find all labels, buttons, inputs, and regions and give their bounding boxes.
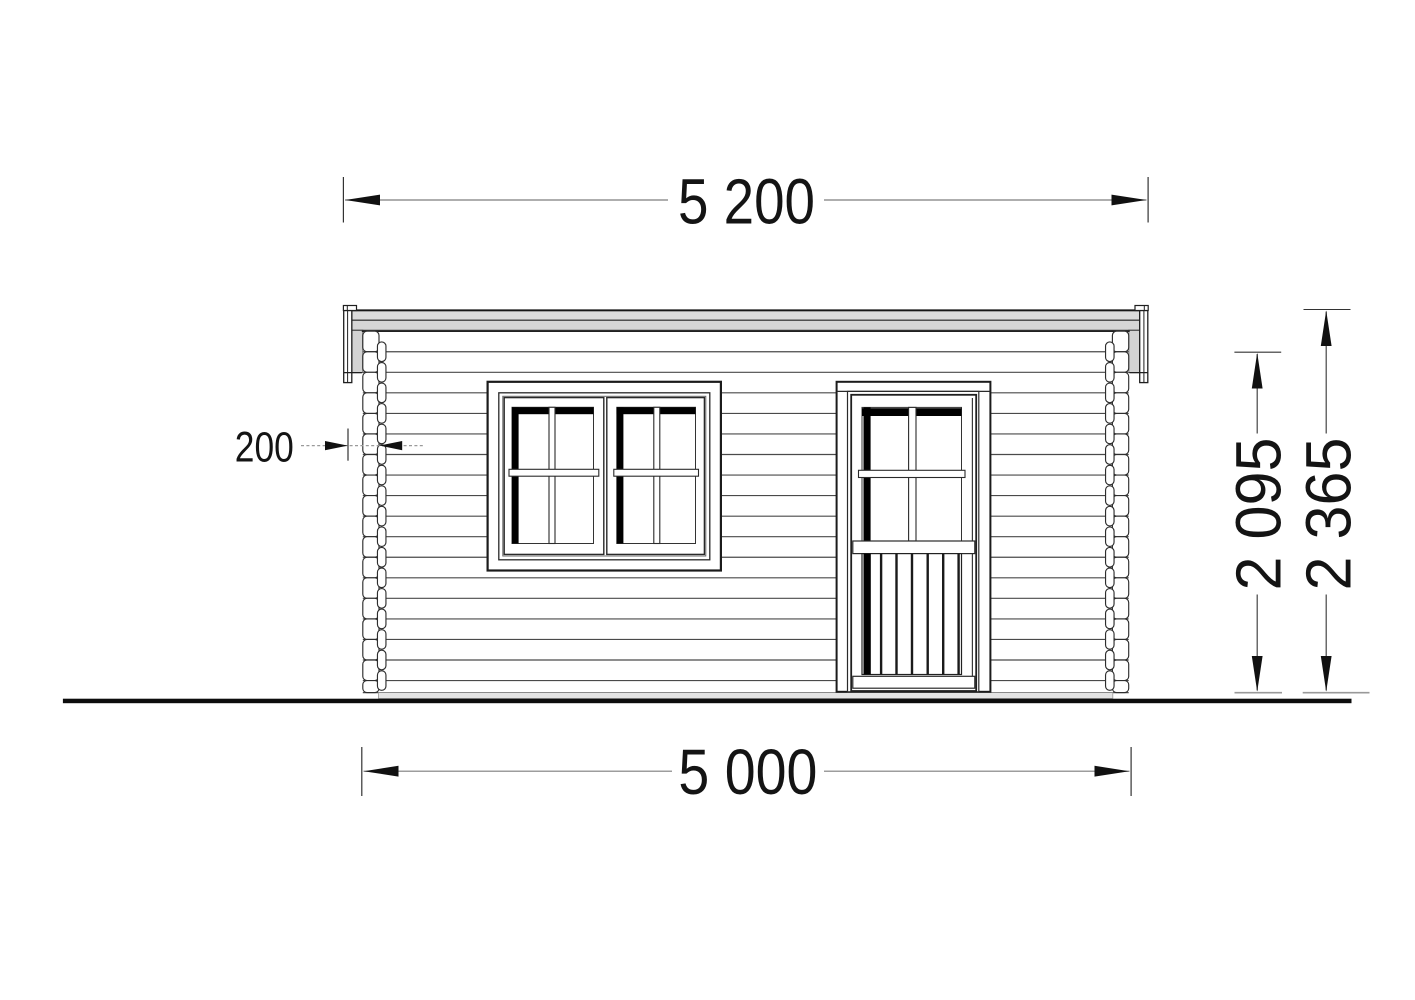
svg-text:5 200: 5 200 [678, 166, 815, 238]
svg-text:5 000: 5 000 [678, 736, 817, 808]
svg-text:200: 200 [235, 423, 294, 471]
svg-text:2 365: 2 365 [1292, 438, 1364, 591]
svg-text:2 095: 2 095 [1223, 438, 1295, 591]
